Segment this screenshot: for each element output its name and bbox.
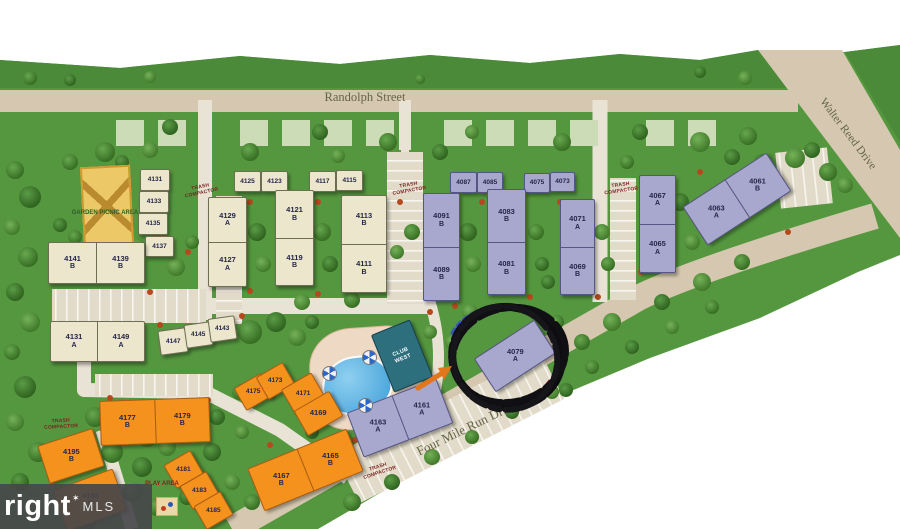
building-number: 4087: [456, 179, 470, 186]
building-letter: B: [504, 269, 509, 277]
site-plan-map: CLUB WEST 413141334135413741254123411741…: [0, 0, 900, 529]
building-letter: B: [292, 215, 297, 223]
building-letter: A: [575, 224, 580, 232]
building-letter: B: [118, 263, 123, 271]
building-number: 4181: [176, 466, 190, 473]
building-4113-4111: 4113B4111B: [341, 195, 387, 293]
building-number: 4171: [296, 390, 310, 397]
building-number: 4113: [356, 212, 372, 220]
building-letter: B: [575, 271, 580, 279]
building-4115: 4115: [336, 170, 363, 191]
building-4091-4089: 4091B4089B: [423, 193, 460, 301]
building-number: 4115: [342, 177, 356, 184]
club-west-label: CLUB WEST: [388, 345, 416, 367]
building-letter: A: [512, 356, 517, 364]
building-number: 4135: [146, 220, 160, 227]
building-number: 4125: [240, 178, 254, 185]
watermark-mls-text: MLS: [82, 499, 115, 514]
building-number: 4143: [215, 325, 229, 332]
building-4141-4139: 4141B4139B: [48, 242, 145, 284]
building-4087: 4087: [450, 172, 477, 193]
building-number: 4165: [322, 452, 339, 460]
building-letter: A: [118, 342, 123, 350]
building-number: 4067: [649, 192, 666, 200]
building-letter: B: [361, 269, 366, 277]
building-4177-4179: 4177B4179B: [99, 397, 211, 446]
building-number: 4131: [66, 333, 83, 341]
building-number: 4085: [483, 179, 497, 186]
building-number: 4071: [569, 215, 586, 223]
building-letter: A: [225, 220, 230, 228]
watermark-star-icon: ✶: [72, 493, 80, 504]
building-number: 4163: [369, 418, 386, 426]
building-number: 4111: [356, 260, 372, 268]
building-4123: 4123: [261, 171, 288, 192]
building-number: 4133: [147, 198, 161, 205]
building-letter: A: [375, 427, 380, 435]
building-number: 4061: [749, 177, 766, 185]
building-letter: B: [125, 423, 130, 431]
building-letter: B: [504, 216, 509, 224]
building-number: 4079: [507, 348, 524, 356]
building-letter: B: [439, 221, 444, 229]
building-letter: B: [278, 480, 283, 488]
play-area-icon: [156, 497, 178, 516]
building-number: 4149: [113, 333, 130, 341]
building-number: 4139: [112, 255, 129, 263]
building-letter: A: [714, 213, 719, 221]
building-letter: B: [292, 262, 297, 270]
building-4071-4069: 4071A4069B: [560, 199, 595, 295]
building-4129-4127: 4129A4127A: [208, 197, 247, 287]
building-number: 4089: [433, 266, 450, 274]
building-4131: 4131: [140, 169, 170, 191]
building-4131-4149: 4131A4149A: [50, 321, 145, 362]
top-hedge: [0, 50, 795, 88]
building-letter: B: [755, 186, 760, 194]
building-number: 4083: [498, 208, 515, 216]
mls-watermark: right ✶ MLS: [0, 484, 152, 529]
building-number: 4161: [414, 401, 431, 409]
building-number: 4121: [286, 206, 303, 214]
building-letter: B: [70, 263, 75, 271]
building-letter: B: [68, 456, 73, 464]
building-number: 4147: [166, 338, 180, 345]
garden-picnic-area: [80, 165, 134, 248]
building-number: 4081: [498, 260, 515, 268]
building-number: 4145: [191, 331, 205, 338]
building-number: 4137: [152, 243, 166, 250]
building-number: 4063: [708, 204, 725, 212]
building-number: 4141: [64, 255, 81, 263]
building-4125: 4125: [234, 171, 261, 192]
building-letter: B: [439, 274, 444, 282]
building-4117: 4117: [309, 171, 336, 192]
street-label-randolph: Randolph Street: [280, 90, 450, 105]
watermark-text: right: [4, 490, 71, 523]
building-number: 4065: [649, 240, 666, 248]
building-4121-4119: 4121B4119B: [275, 190, 314, 286]
building-number: 4069: [569, 263, 586, 271]
building-letter: B: [328, 460, 333, 468]
building-number: 4173: [268, 377, 282, 384]
trash-compactor-label: TRASHCOMPACTOR: [38, 417, 85, 431]
building-number: 4175: [246, 388, 260, 395]
building-4075: 4075: [524, 173, 550, 193]
building-letter: A: [655, 249, 660, 257]
building-number: 4075: [530, 179, 544, 186]
building-number: 4169: [310, 409, 327, 417]
building-4073: 4073: [550, 172, 575, 192]
building-letter: A: [420, 410, 425, 418]
building-number: 4123: [267, 178, 281, 185]
building-letter: A: [71, 342, 76, 350]
building-number: 4091: [433, 212, 450, 220]
building-number: 4131: [148, 176, 162, 183]
building-number: 4117: [315, 178, 329, 185]
building-number: 4183: [192, 487, 206, 494]
building-letter: B: [180, 421, 185, 429]
building-number: 4185: [206, 507, 220, 514]
building-4083-4081: 4083B4081B: [487, 189, 526, 295]
building-number: 4195: [63, 448, 80, 456]
building-number: 4167: [273, 472, 290, 480]
building-4143: 4143: [207, 315, 237, 343]
building-letter: A: [225, 265, 230, 273]
building-number: 4119: [286, 254, 302, 262]
building-letter: A: [655, 200, 660, 208]
building-number: 4127: [219, 256, 236, 264]
building-letter: B: [361, 220, 366, 228]
building-number: 4129: [219, 212, 236, 220]
umbrella-icon: [358, 398, 373, 413]
umbrella-icon: [362, 350, 377, 365]
building-4137: 4137: [145, 236, 174, 257]
umbrella-icon: [322, 366, 337, 381]
building-number: 4073: [555, 178, 569, 185]
garden-picnic-area-label: GARDEN PICNIC AREA: [60, 210, 150, 218]
